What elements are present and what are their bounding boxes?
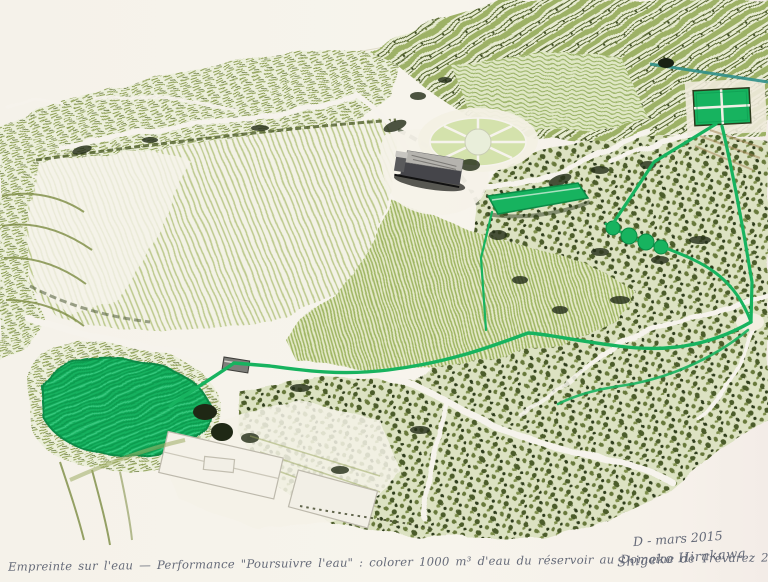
artwork-drawing [0,0,768,582]
artwork-photo: Empreinte sur l'eau — Performance "Pours… [0,0,768,582]
tennis-courts [685,78,768,136]
dark-grove [658,58,674,68]
